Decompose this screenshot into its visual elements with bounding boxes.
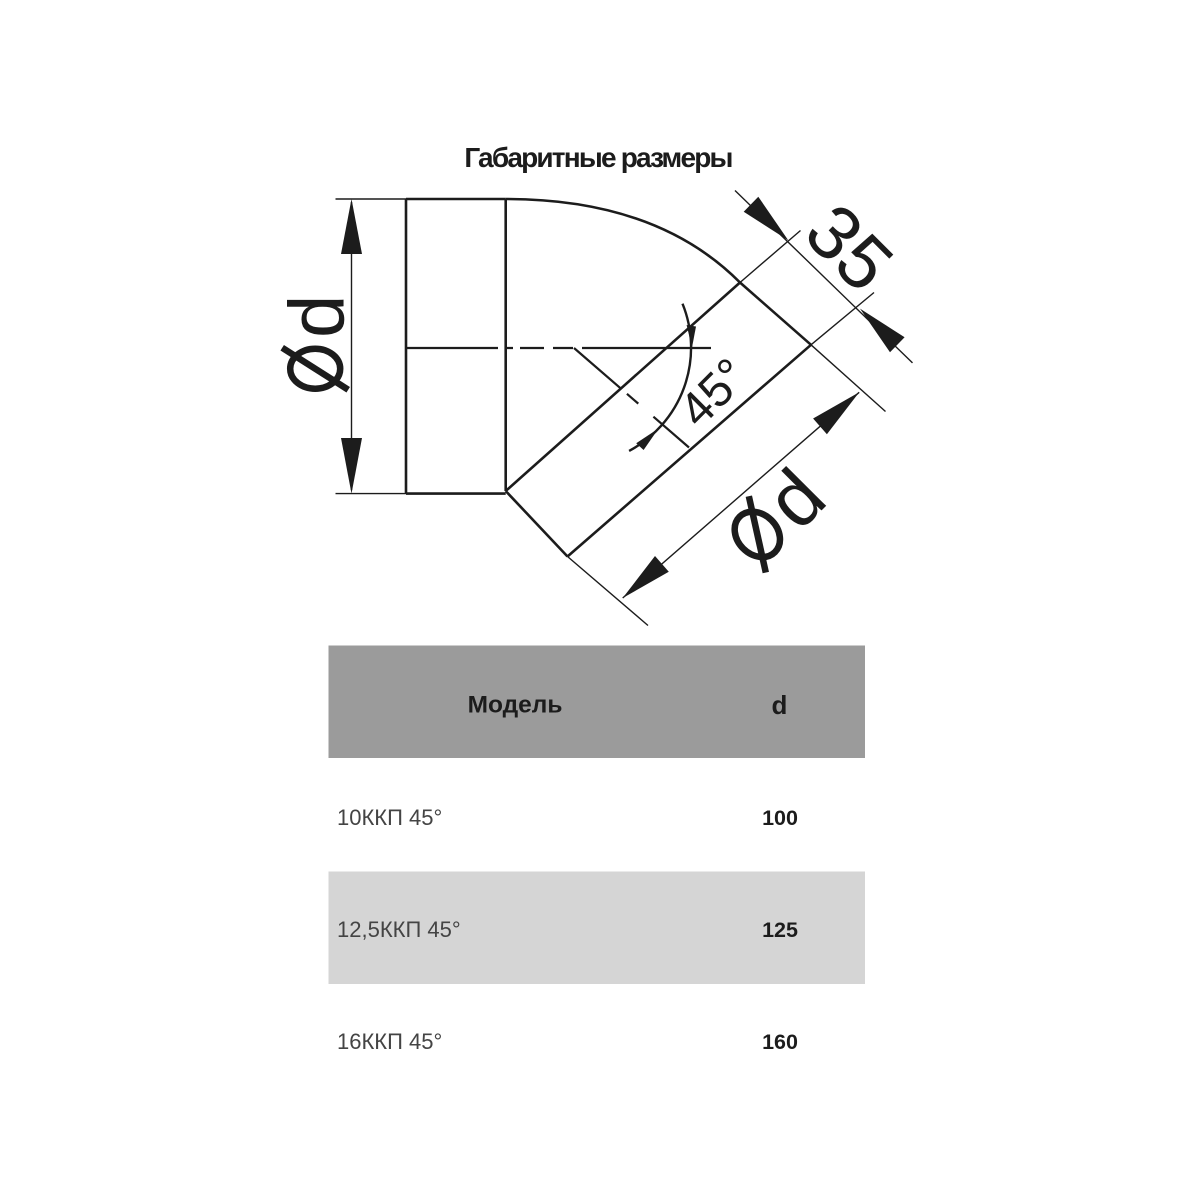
svg-text:100: 100: [762, 806, 798, 830]
svg-text:Габаритные размеры: Габаритные размеры: [464, 142, 731, 173]
svg-text:125: 125: [762, 918, 798, 942]
svg-text:d: d: [273, 295, 361, 338]
svg-text:12,5ККП 45°: 12,5ККП 45°: [337, 917, 461, 942]
svg-text:10ККП 45°: 10ККП 45°: [337, 805, 442, 830]
svg-text:Модель: Модель: [468, 692, 563, 719]
svg-text:d: d: [772, 690, 788, 720]
svg-text:160: 160: [762, 1030, 798, 1054]
svg-text:16ККП 45°: 16ККП 45°: [337, 1029, 442, 1054]
